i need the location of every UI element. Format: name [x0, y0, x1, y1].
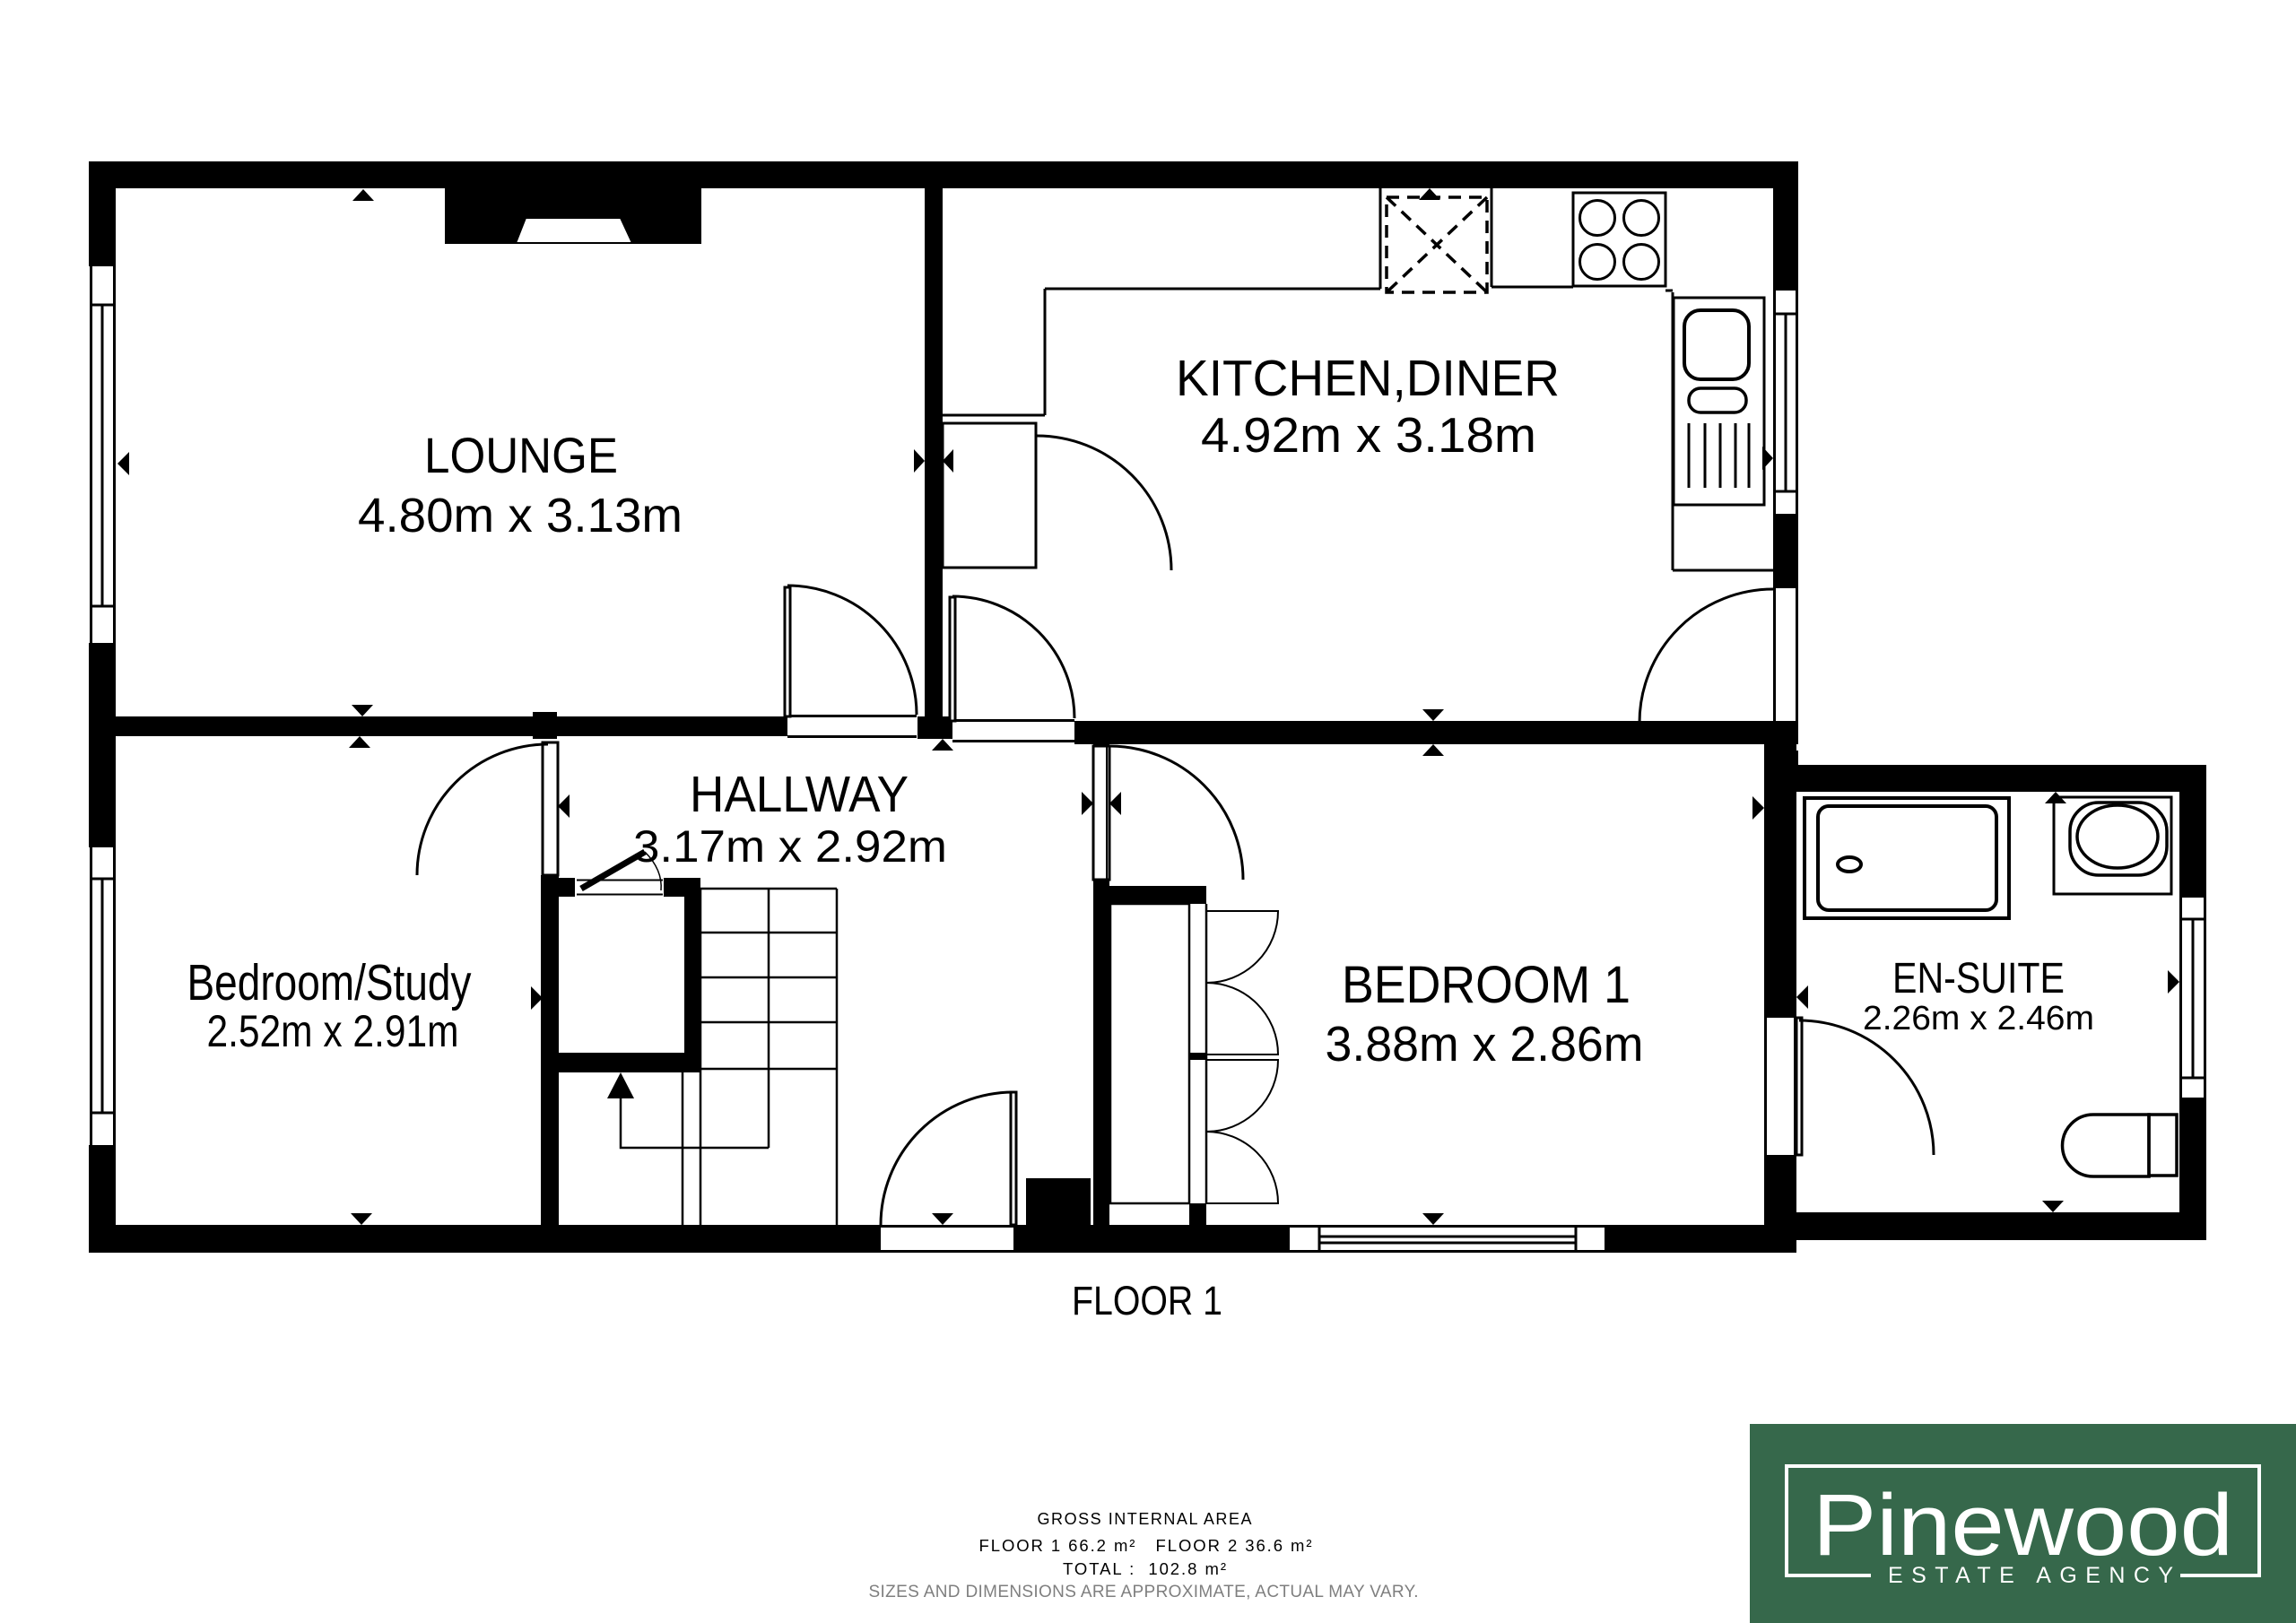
svg-text:GROSS INTERNAL AREA: GROSS INTERNAL AREA	[1038, 1510, 1252, 1528]
svg-text:HALLWAY: HALLWAY	[690, 766, 909, 823]
svg-text:2.26m x 2.46m: 2.26m x 2.46m	[1863, 1000, 2094, 1037]
svg-text:3.88m x 2.86m: 3.88m x 2.86m	[1326, 1016, 1644, 1072]
svg-text:Bedroom/Study: Bedroom/Study	[187, 954, 472, 1011]
svg-text:FLOOR 1 66.2 m² FLOOR 2 36.6: FLOOR 1 66.2 m² FLOOR 2 36.6 m²	[979, 1536, 1312, 1555]
svg-text:3.17m x 2.92m: 3.17m x 2.92m	[633, 821, 947, 872]
svg-text:4.80m x 3.13m: 4.80m x 3.13m	[358, 489, 683, 542]
svg-text:EN-SUITE: EN-SUITE	[1892, 955, 2065, 1002]
svg-text:LOUNGE: LOUNGE	[424, 427, 618, 483]
svg-text:SIZES AND DIMENSIONS ARE APPRO: SIZES AND DIMENSIONS ARE APPROXIMATE, AC…	[869, 1583, 1419, 1601]
svg-text:KITCHEN,DINER: KITCHEN,DINER	[1176, 350, 1560, 407]
svg-text:TOTAL : 102.8 m²: TOTAL : 102.8 m²	[1063, 1559, 1226, 1578]
svg-text:BEDROOM 1: BEDROOM 1	[1342, 956, 1631, 1014]
svg-text:2.52m x 2.91m: 2.52m x 2.91m	[207, 1006, 459, 1056]
svg-text:Pinewood: Pinewood	[1813, 1476, 2233, 1574]
svg-text:FLOOR 1: FLOOR 1	[1072, 1278, 1222, 1324]
svg-text:4.92m x 3.18m: 4.92m x 3.18m	[1201, 407, 1536, 463]
